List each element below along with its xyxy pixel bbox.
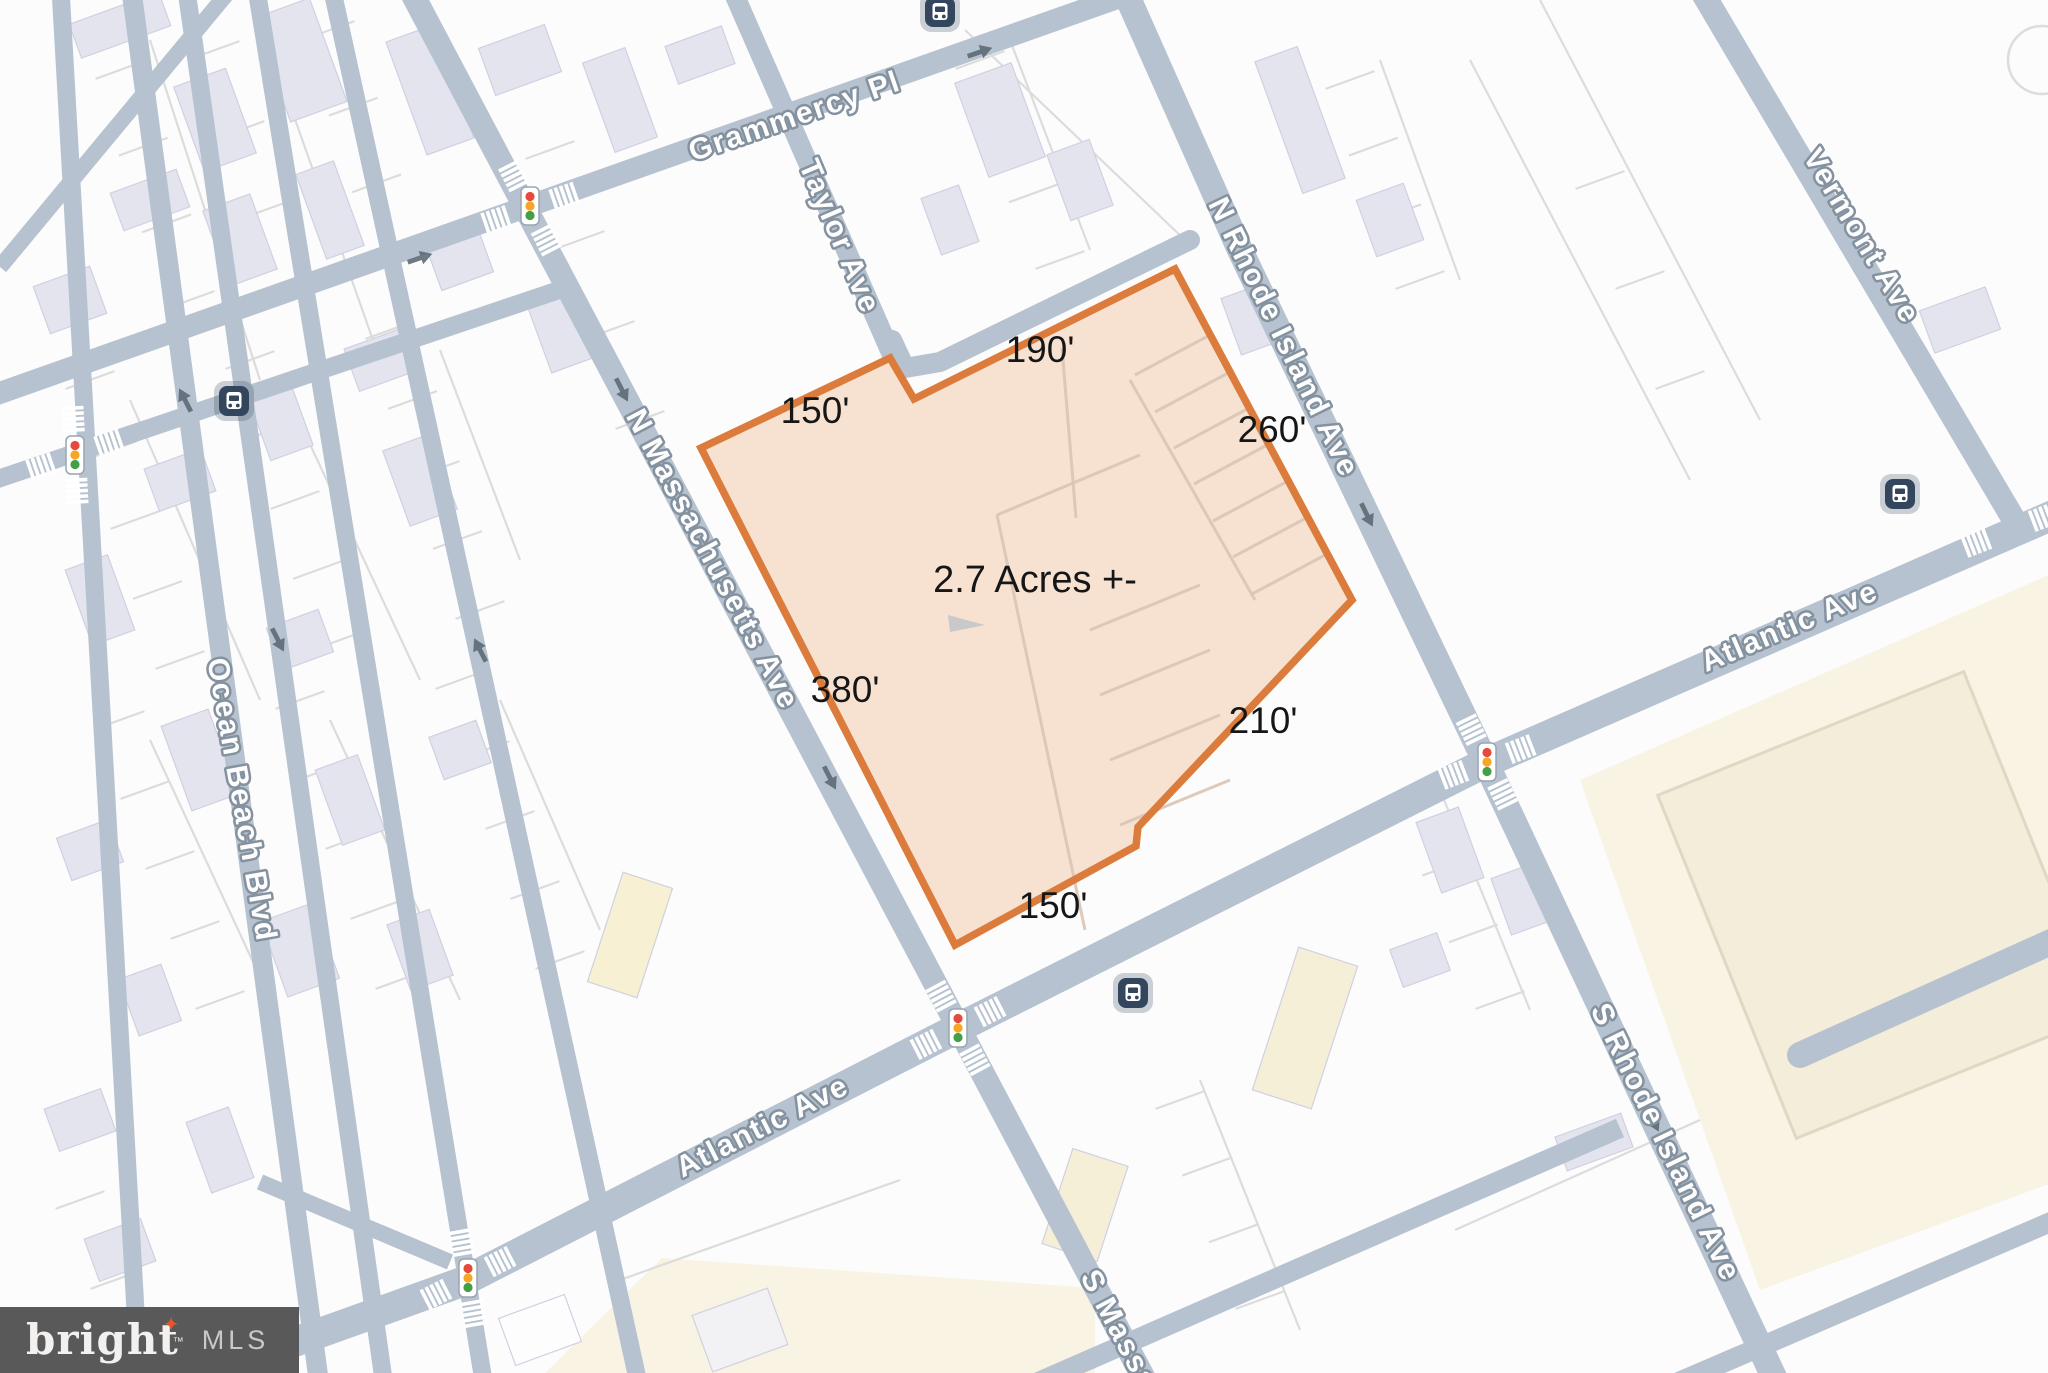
traffic-light-icon bbox=[949, 1009, 967, 1047]
transit-station-icon bbox=[214, 381, 254, 421]
map-screenshot: Grammercy PlTaylor AveN Rhode Island Ave… bbox=[0, 0, 2048, 1373]
parcel-area-label: 2.7 Acres +- bbox=[933, 559, 1137, 601]
parcel-dimension-label-left: 380' bbox=[811, 669, 880, 710]
logo-brand-text: bright bbox=[26, 1319, 179, 1361]
parcel-dimension-label-right: 260' bbox=[1238, 409, 1307, 450]
traffic-light-icon bbox=[521, 187, 539, 225]
logo-tm-text: ™ bbox=[173, 1336, 184, 1348]
transit-station-icon bbox=[920, 0, 960, 32]
parcel-dimension-label-lower-right: 210' bbox=[1229, 700, 1298, 741]
parcel-dimension-label-top-left: 150' bbox=[781, 390, 850, 431]
map-canvas[interactable]: Grammercy PlTaylor AveN Rhode Island Ave… bbox=[0, 0, 2048, 1373]
transit-station-icon bbox=[1880, 474, 1920, 514]
traffic-light-icon bbox=[1478, 743, 1496, 781]
transit-station-icon bbox=[1113, 973, 1153, 1013]
brightmls-logo: bright✦™ MLS bbox=[0, 1307, 299, 1373]
parcel-dimension-label-top: 190' bbox=[1006, 329, 1075, 370]
traffic-light-icon bbox=[459, 1259, 477, 1297]
traffic-light-icon bbox=[66, 436, 84, 474]
parcel-dimension-label-bottom: 150' bbox=[1019, 885, 1088, 926]
logo-mls-text: MLS bbox=[202, 1325, 270, 1356]
